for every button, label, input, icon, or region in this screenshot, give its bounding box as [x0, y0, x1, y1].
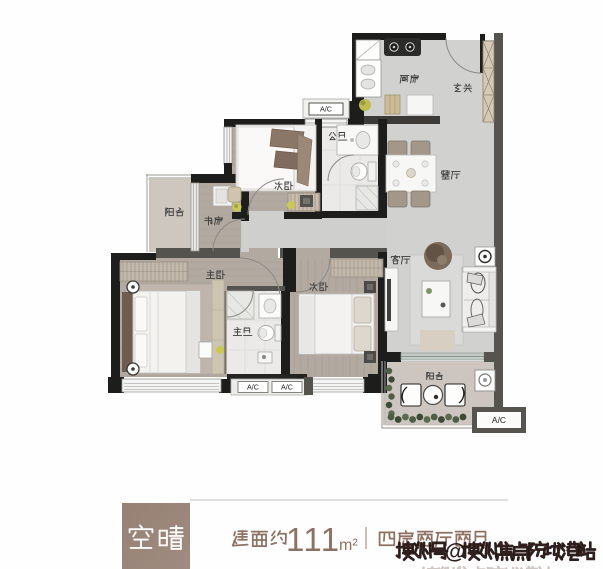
svg-text:A/C: A/C	[247, 383, 259, 392]
svg-text:@: @	[445, 539, 466, 563]
svg-text:A/C: A/C	[281, 383, 293, 392]
svg-text:111: 111	[286, 521, 341, 558]
svg-text:A/C: A/C	[320, 105, 332, 114]
svg-text:m²: m²	[339, 537, 358, 554]
svg-text:A/C: A/C	[492, 415, 506, 425]
